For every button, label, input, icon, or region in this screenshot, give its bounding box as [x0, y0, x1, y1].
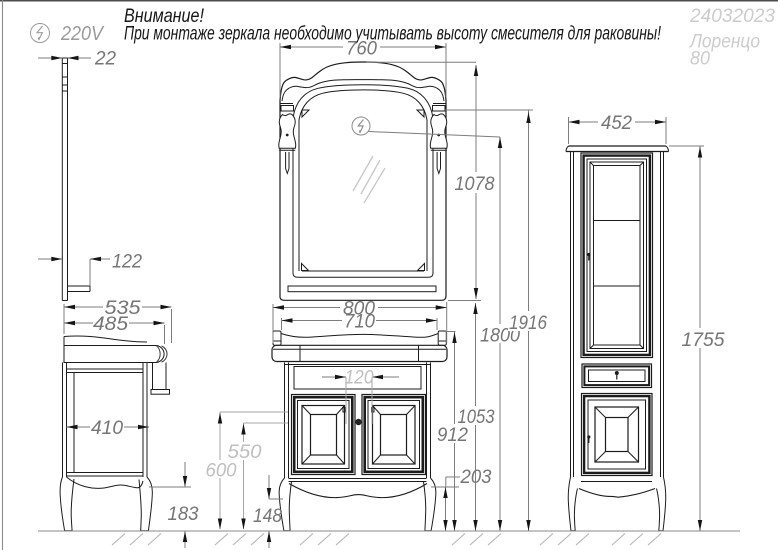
svg-text:148: 148 — [253, 506, 282, 527]
svg-text:80: 80 — [690, 49, 710, 70]
svg-text:410: 410 — [91, 418, 123, 439]
svg-text:22: 22 — [94, 49, 116, 70]
svg-text:При монтаже зеркала необходимо: При монтаже зеркала необходимо учитывать… — [124, 24, 662, 45]
svg-text:24032023: 24032023 — [689, 6, 775, 27]
svg-text:120: 120 — [345, 368, 374, 389]
svg-text:220V: 220V — [60, 23, 104, 45]
svg-text:912: 912 — [437, 425, 468, 446]
svg-text:183: 183 — [168, 504, 199, 525]
svg-text:1078: 1078 — [455, 174, 495, 195]
svg-text:760: 760 — [346, 39, 377, 60]
svg-text:1916: 1916 — [509, 313, 547, 334]
svg-text:600: 600 — [206, 461, 237, 482]
svg-text:1053: 1053 — [458, 407, 495, 428]
svg-text:710: 710 — [344, 312, 375, 333]
svg-text:122: 122 — [112, 252, 142, 273]
svg-text:1755: 1755 — [682, 330, 725, 351]
svg-text:452: 452 — [601, 113, 632, 134]
svg-text:485: 485 — [93, 314, 128, 335]
